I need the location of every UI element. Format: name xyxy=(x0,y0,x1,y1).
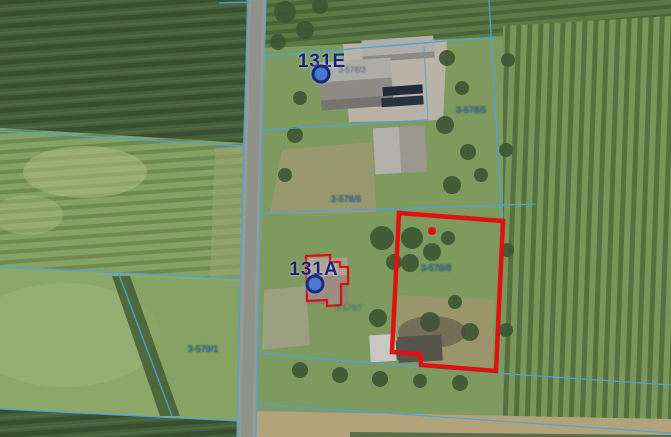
red-point-marker xyxy=(428,227,436,235)
building-shed xyxy=(373,126,427,175)
map-canvas xyxy=(0,0,671,437)
aerial-map-viewport[interactable]: 131E 131A 3-578/3 3-578/5 3-578/6 3-578/… xyxy=(0,0,671,437)
address-marker-131A[interactable] xyxy=(306,275,325,294)
terrain-layer xyxy=(0,0,671,437)
address-marker-131E[interactable] xyxy=(312,65,331,84)
